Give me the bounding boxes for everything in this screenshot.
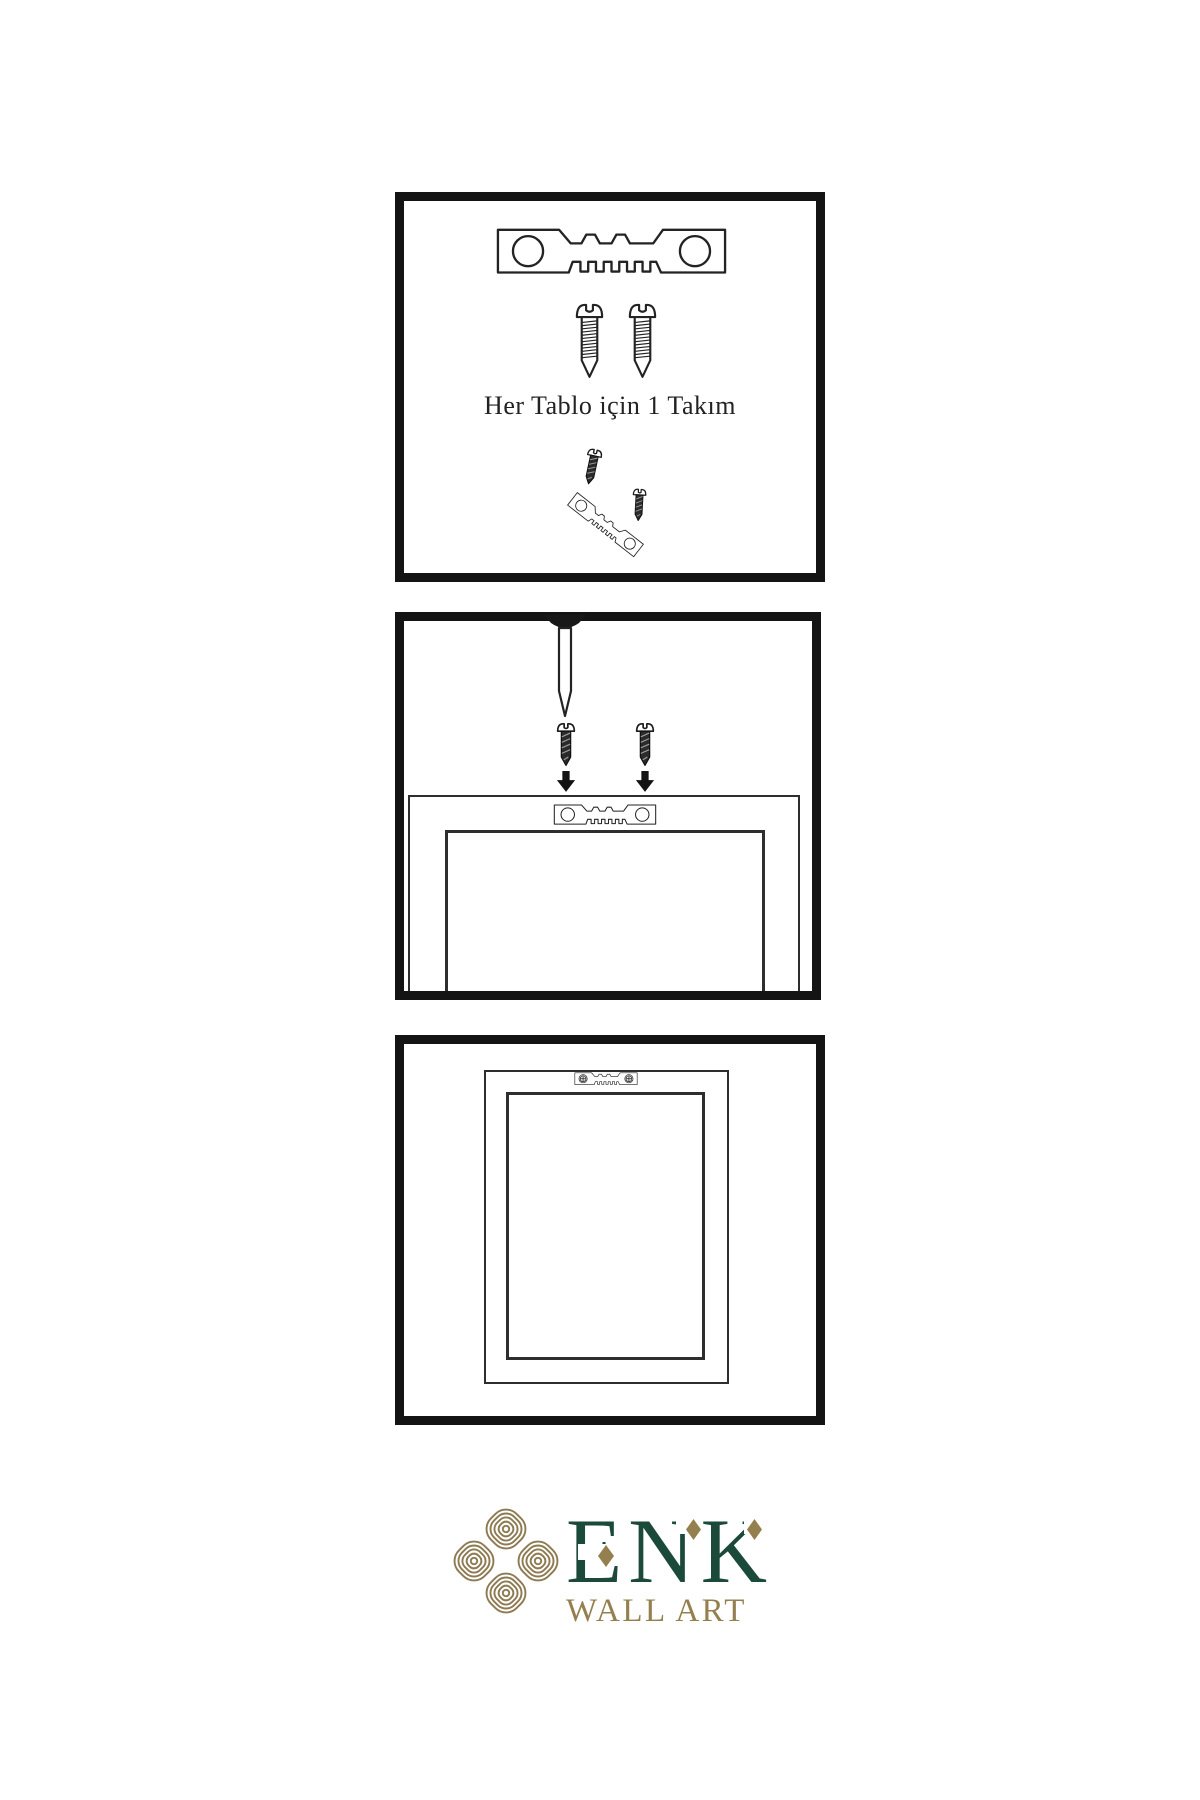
dark-screw-icon xyxy=(554,722,578,768)
step1-hardware-kit-panel: Her Tablo için 1 Takım xyxy=(395,192,825,582)
gold-diamond-icon xyxy=(686,1519,701,1540)
dark-screw-icon xyxy=(629,488,649,524)
step3-mounted-panel xyxy=(395,1035,825,1425)
dark-screw-icon xyxy=(578,446,606,488)
screw-icon xyxy=(625,302,660,380)
nail-icon xyxy=(543,615,587,719)
instruction-sheet: { "page": { "background_color": "#ffffff… xyxy=(0,0,1200,1800)
dark-screw-icon xyxy=(633,722,657,768)
brand-subtitle: WALL ART xyxy=(566,1593,747,1630)
frame-back-inner xyxy=(445,830,765,991)
letter-patch xyxy=(578,1544,616,1560)
frame-back-inner xyxy=(506,1092,705,1360)
down-arrow-icon xyxy=(635,771,655,793)
brand-name: ENK xyxy=(566,1505,773,1597)
screw-into-hanger-icon xyxy=(576,448,670,560)
kit-caption: Her Tablo için 1 Takım xyxy=(404,391,816,421)
screw-icon xyxy=(572,302,607,380)
step2-attach-hanger-panel xyxy=(395,612,821,1000)
letter-patch xyxy=(676,1514,702,1534)
sawtooth-hanger-icon xyxy=(553,802,657,827)
mounted-sawtooth-hanger-icon xyxy=(574,1071,638,1086)
letter-patch xyxy=(744,1514,774,1534)
down-arrow-icon xyxy=(556,771,576,793)
knot-icon xyxy=(442,1497,570,1625)
gold-diamond-icon xyxy=(747,1519,762,1540)
sawtooth-hanger-icon xyxy=(495,223,728,279)
gold-diamond-icon xyxy=(598,1545,614,1567)
